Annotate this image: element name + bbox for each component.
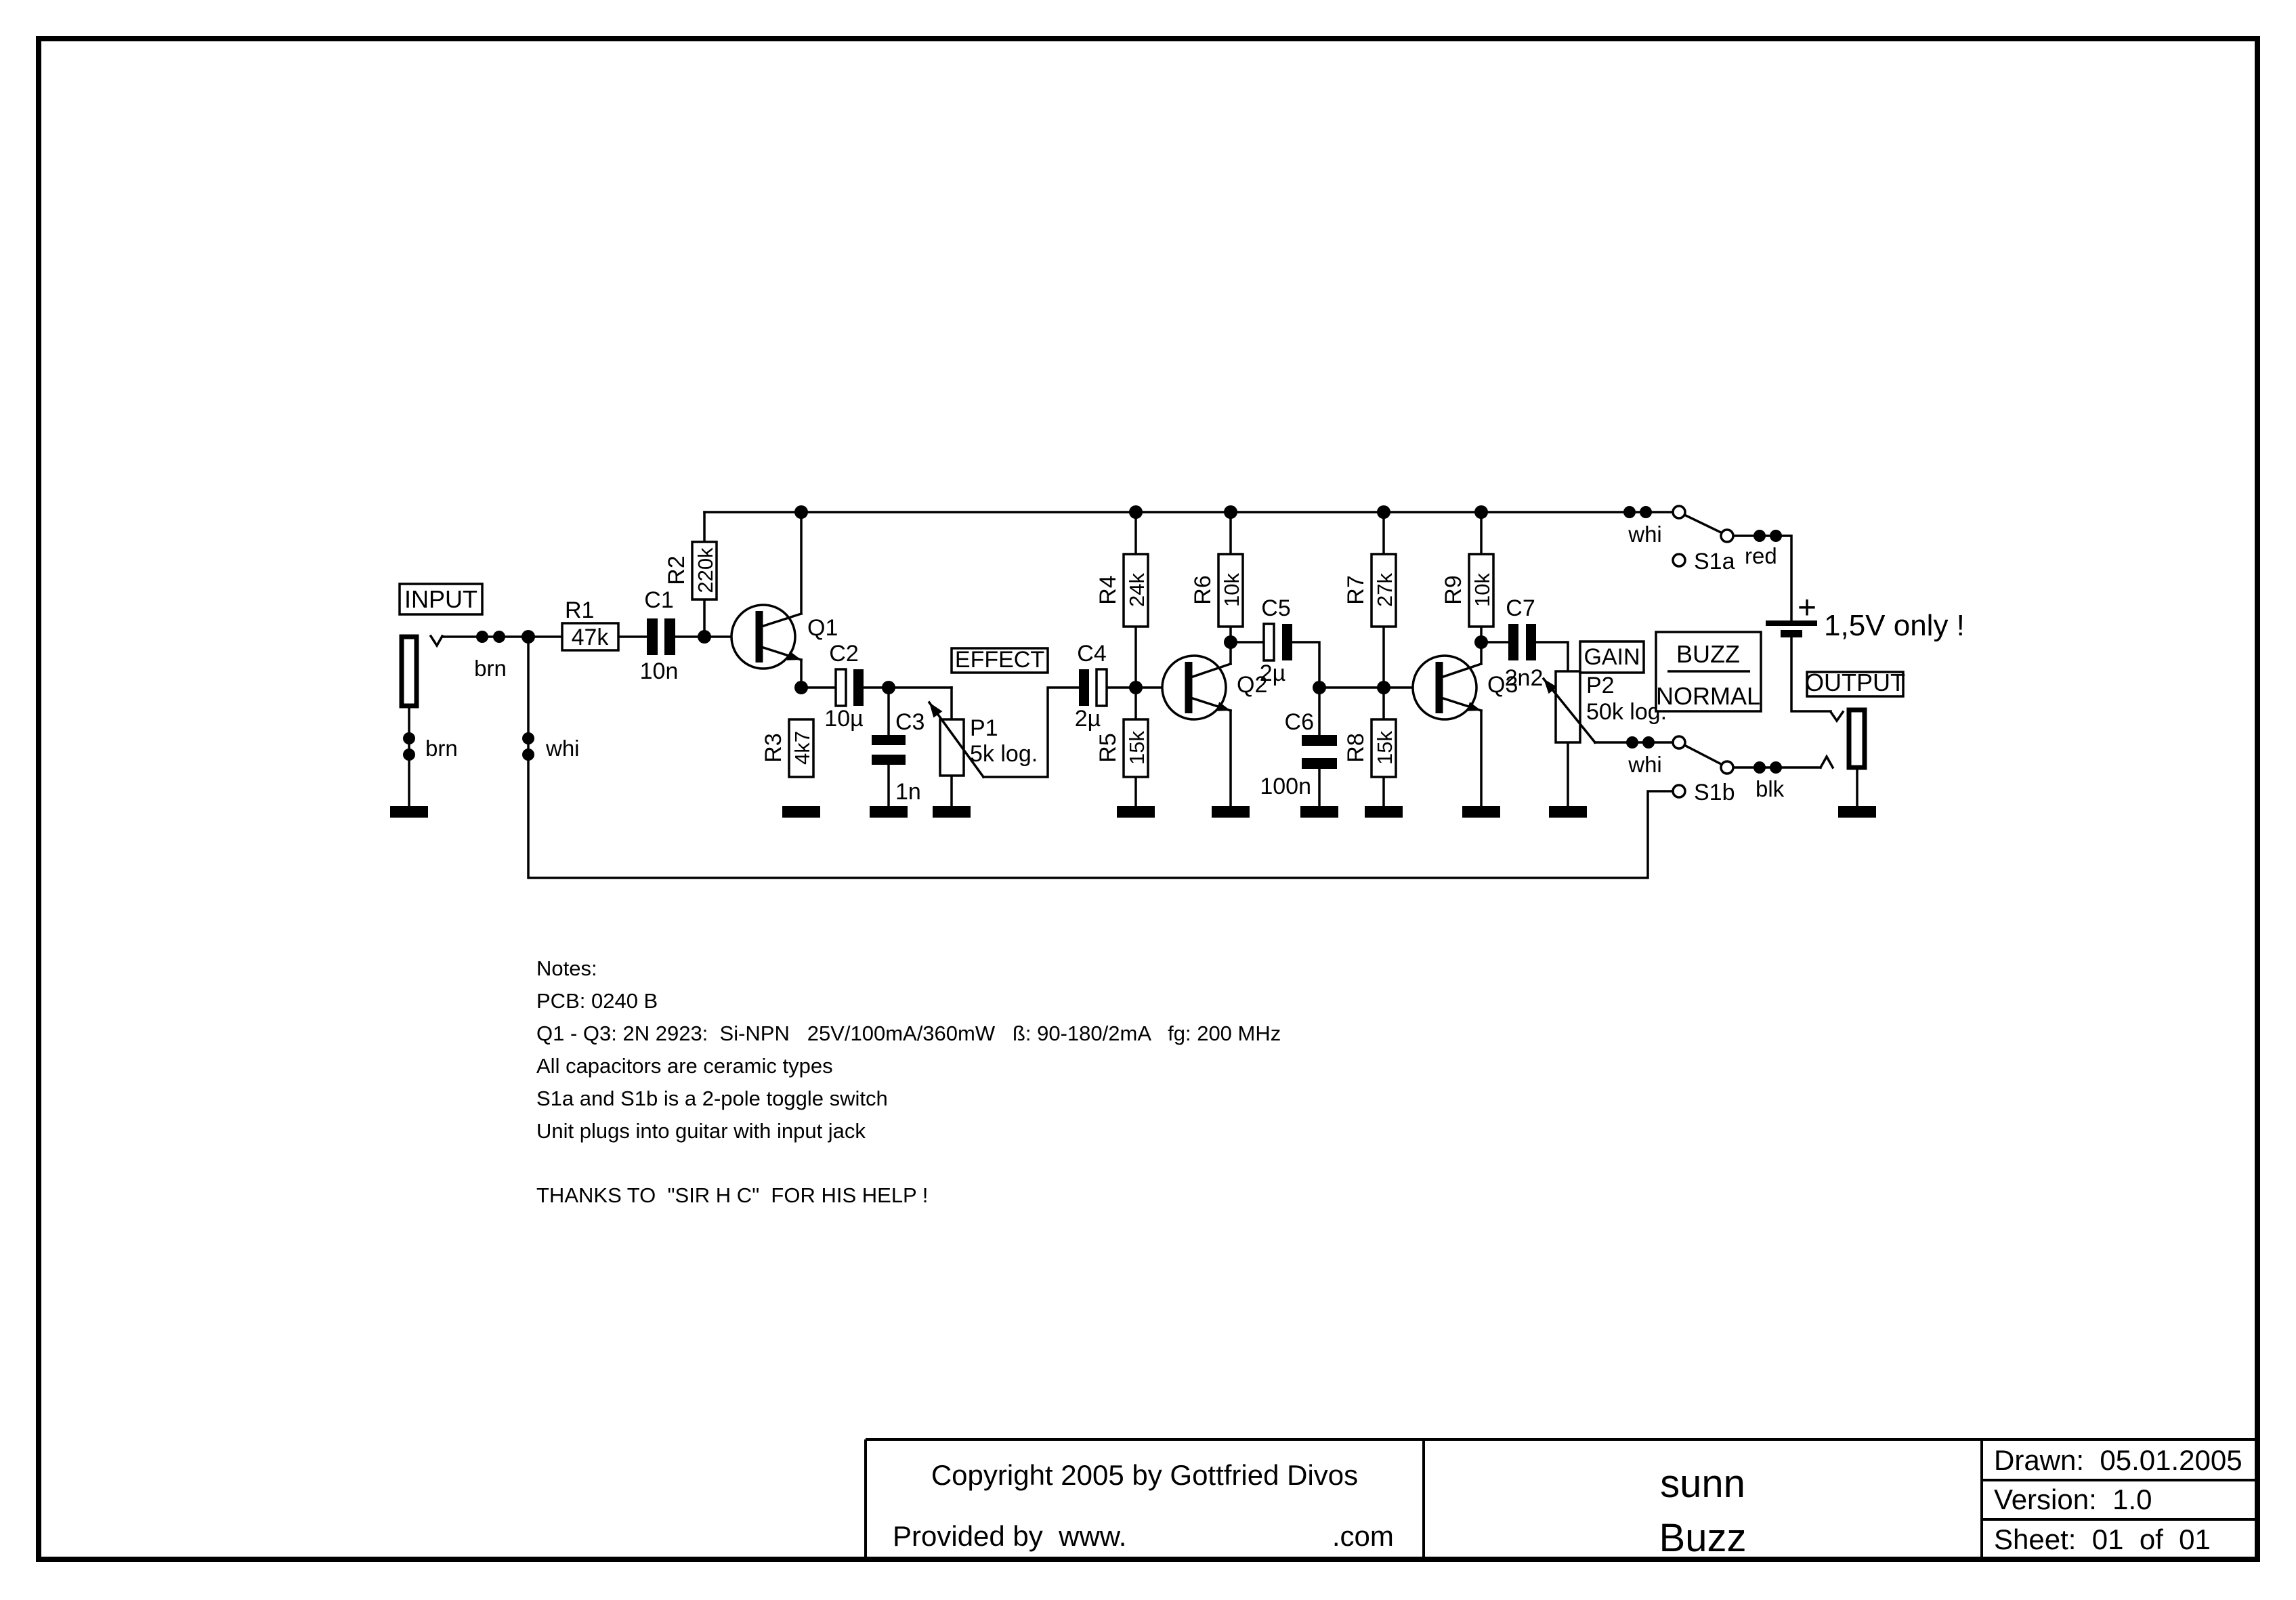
titleblock-provided: Provided by www. .com — [893, 1520, 1394, 1552]
titleblock-version: Version: 1.0 — [1994, 1483, 2152, 1515]
ground-symbol — [390, 806, 428, 818]
c5-value: 2µ — [1260, 660, 1286, 686]
s1a-label: S1a — [1694, 549, 1735, 574]
s1b-label: S1b — [1694, 780, 1735, 805]
potentiometer-p1: P1 5k log. — [929, 702, 1038, 777]
c6-value: 100n — [1260, 774, 1311, 799]
page-border — [39, 39, 2257, 1559]
wire-label-brn-top: brn — [474, 656, 507, 681]
ground-symbol — [1300, 806, 1338, 818]
ground-symbols — [390, 806, 1876, 818]
wire-label-blk: blk — [1756, 776, 1785, 801]
resistor-r7: R7 27k — [1343, 554, 1397, 627]
input-jack: INPUT brn brn whi — [400, 584, 580, 761]
r6-value: 10k — [1220, 573, 1243, 607]
titleblock-drawn: Drawn: 05.01.2005 — [1994, 1444, 2242, 1476]
p2-value: 50k log. — [1586, 699, 1667, 725]
resistor-r1: R1 47k — [562, 597, 618, 650]
switch-s1b: whi blk S1b — [1626, 736, 1785, 805]
r5-value: 15k — [1125, 731, 1149, 765]
ground-symbol — [870, 806, 908, 818]
notes-line: PCB: 0240 B — [536, 989, 658, 1013]
transistor-q3: Q3 — [1413, 656, 1518, 719]
r6-ref: R6 — [1190, 575, 1216, 604]
c7-ref: C7 — [1506, 595, 1535, 621]
ground-symbol — [1462, 806, 1500, 818]
transistor-q1: Q1 — [731, 605, 838, 669]
p1-ref: P1 — [970, 715, 998, 741]
pot-body — [940, 719, 964, 776]
capacitor-c5: C5 2µ — [1260, 595, 1292, 686]
c2-value: 10µ — [824, 706, 863, 732]
output-jack: OUTPUT — [1805, 669, 1905, 767]
transistor-q2: Q2 — [1162, 656, 1267, 719]
notes-line: Unit plugs into guitar with input jack — [536, 1119, 866, 1143]
titleblock-product-line2: Buzz — [1659, 1516, 1747, 1560]
buzz-label: BUZZ — [1676, 640, 1740, 668]
c5-ref: C5 — [1261, 595, 1290, 621]
schematic-page: INPUT brn brn whi R1 47k C1 10n R2 220k … — [0, 0, 2296, 1600]
c4-value: 2µ — [1075, 706, 1101, 732]
r1-ref: R1 — [565, 597, 594, 623]
notes-thanks: THANKS TO "SIR H C" FOR HIS HELP ! — [536, 1183, 928, 1207]
ground-symbol — [1838, 806, 1876, 818]
potentiometer-p2: P2 50k log. — [1544, 671, 1667, 742]
resistor-r3: R3 4k7 — [761, 719, 814, 777]
notes-line: Q1 - Q3: 2N 2923: Si-NPN 25V/100mA/360mW… — [536, 1022, 1281, 1045]
c2-ref: C2 — [829, 641, 858, 667]
notes-block: Notes: PCB: 0240 B Q1 - Q3: 2N 2923: Si-… — [536, 956, 1281, 1207]
titleblock-copyright: Copyright 2005 by Gottfried Divos — [931, 1459, 1358, 1491]
notes-heading: Notes: — [536, 956, 597, 980]
r9-ref: R9 — [1441, 575, 1466, 604]
c1-value: 10n — [640, 658, 679, 684]
c1-ref: C1 — [644, 587, 673, 613]
q1-ref: Q1 — [807, 615, 838, 641]
wire-label-whi-in: whi — [545, 736, 580, 761]
r4-value: 24k — [1125, 573, 1149, 607]
ground-symbol — [782, 806, 820, 818]
titleblock-sheet: Sheet: 01 of 01 — [1994, 1523, 2211, 1555]
ground-symbol — [1117, 806, 1155, 818]
c7-value: 2n2 — [1505, 665, 1544, 691]
output-jack-body — [1849, 710, 1865, 767]
capacitor-c4: C4 2µ — [1075, 641, 1107, 732]
r2-ref: R2 — [664, 555, 689, 585]
ground-symbol — [1212, 806, 1250, 818]
input-jack-body — [402, 637, 417, 706]
title-block: Copyright 2005 by Gottfried Divos Provid… — [866, 1439, 2255, 1560]
resistor-r9: R9 10k — [1441, 554, 1494, 627]
battery: + 1,5V only ! — [1766, 590, 1965, 642]
wire-label-whi-s1b: whi — [1628, 752, 1662, 777]
c6-ref: C6 — [1285, 709, 1314, 735]
r8-ref: R8 — [1343, 733, 1369, 762]
effect-label: EFFECT — [955, 647, 1044, 673]
pot-body — [1556, 671, 1580, 742]
output-label: OUTPUT — [1805, 669, 1905, 696]
normal-label: NORMAL — [1656, 682, 1760, 710]
resistor-r6: R6 10k — [1190, 554, 1243, 627]
r2-value: 220k — [694, 547, 717, 593]
c4-ref: C4 — [1077, 641, 1106, 667]
battery-negative-plate — [1781, 630, 1802, 637]
p1-value: 5k log. — [970, 741, 1038, 767]
r3-ref: R3 — [761, 733, 786, 762]
switch-s1a: whi red S1a — [1623, 506, 1782, 574]
wire-label-red: red — [1745, 543, 1777, 568]
effect-label-box: EFFECT — [952, 647, 1048, 673]
c3-value: 1n — [895, 779, 921, 805]
titleblock-product-line1: sunn — [1660, 1462, 1745, 1506]
r4-ref: R4 — [1095, 575, 1121, 604]
notes-line: All capacitors are ceramic types — [536, 1054, 833, 1078]
ground-symbol — [1365, 806, 1403, 818]
r7-value: 27k — [1373, 573, 1397, 607]
buzz-normal-label-box: BUZZ NORMAL — [1656, 632, 1761, 711]
input-label: INPUT — [404, 585, 477, 613]
capacitor-c3: C3 1n — [872, 709, 924, 805]
notes-line: S1a and S1b is a 2-pole toggle switch — [536, 1087, 888, 1110]
ground-symbol — [933, 806, 971, 818]
r7-ref: R7 — [1343, 575, 1369, 604]
ground-symbol — [1549, 806, 1587, 818]
r3-value: 4k7 — [790, 731, 814, 765]
gain-label: GAIN — [1583, 644, 1640, 670]
capacitor-c6: C6 100n — [1260, 709, 1337, 799]
resistor-r5: R5 15k — [1095, 719, 1149, 777]
r8-value: 15k — [1373, 731, 1397, 765]
p2-ref: P2 — [1586, 673, 1615, 698]
capacitor-c2: C2 10µ — [824, 641, 864, 732]
r1-value: 47k — [572, 625, 610, 650]
wire-label-brn-gnd: brn — [425, 736, 458, 761]
gain-label-box: GAIN — [1580, 641, 1644, 673]
wire-label-whi-s1a: whi — [1628, 522, 1662, 547]
r5-ref: R5 — [1095, 733, 1121, 762]
r9-value: 10k — [1470, 573, 1494, 607]
resistor-r4: R4 24k — [1095, 554, 1149, 627]
c3-ref: C3 — [895, 709, 924, 735]
resistor-r8: R8 15k — [1343, 719, 1397, 777]
battery-note: 1,5V only ! — [1824, 609, 1965, 642]
